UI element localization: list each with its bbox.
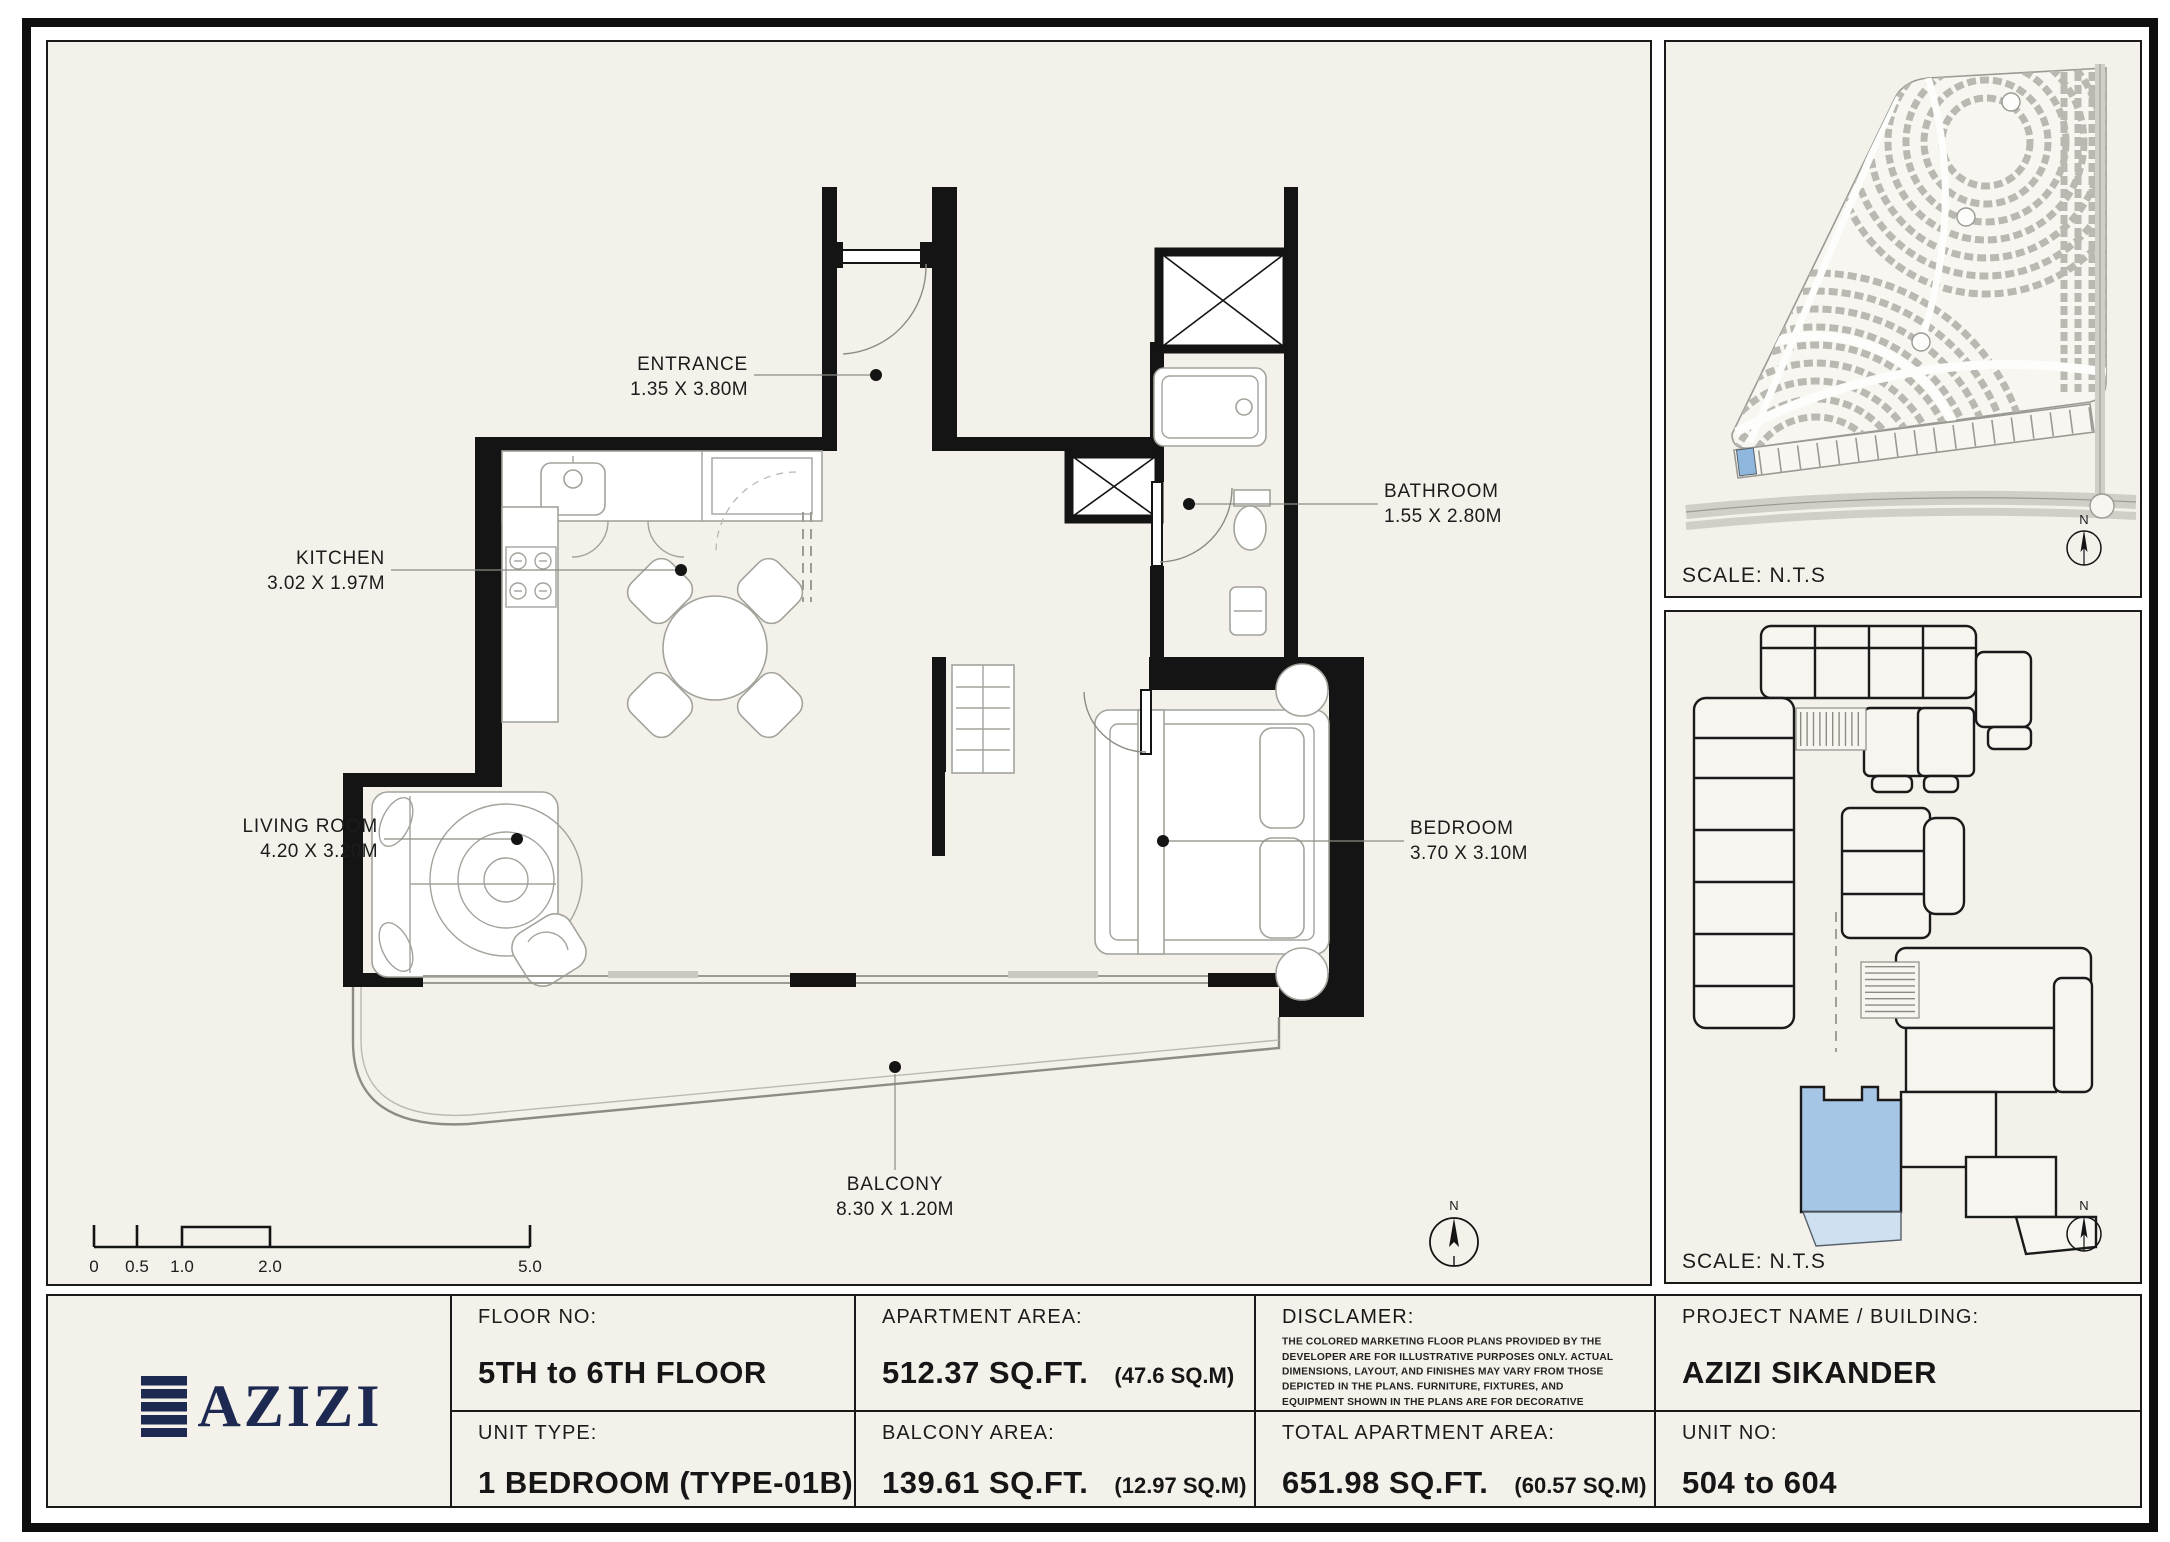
svg-text:4.20 X 3.20M: 4.20 X 3.20M bbox=[260, 841, 378, 862]
svg-text:KITCHEN: KITCHEN bbox=[296, 548, 385, 569]
floor-plan-panel: ENTRANCE 1.35 X 3.80M KITCHEN 3.02 X 1.9… bbox=[46, 40, 1652, 1286]
floor-no-label: FLOOR NO: bbox=[478, 1306, 854, 1329]
svg-text:0.5: 0.5 bbox=[125, 1257, 149, 1276]
site-north-arrow-icon: N bbox=[2067, 512, 2101, 565]
svg-text:LIVING ROOM: LIVING ROOM bbox=[243, 816, 378, 837]
svg-text:0: 0 bbox=[89, 1257, 98, 1276]
bedroom-furniture bbox=[1079, 660, 1329, 1000]
project-name-value: AZIZI SIKANDER bbox=[1682, 1355, 2140, 1391]
unit-type-value: 1 BEDROOM (TYPE-01B) bbox=[478, 1465, 854, 1501]
living-room-furniture bbox=[372, 792, 593, 993]
key-plan-panel: N SCALE: N.T.S bbox=[1664, 610, 2142, 1284]
disclaimer-title: DISCLAMER: bbox=[1282, 1306, 1654, 1329]
site-map-drawing: N SCALE: N.T.S bbox=[1666, 42, 2140, 596]
apartment-area-sqm: (47.6 SQ.M) bbox=[1114, 1363, 1234, 1388]
floor-plan-drawing: ENTRANCE 1.35 X 3.80M KITCHEN 3.02 X 1.9… bbox=[48, 42, 1650, 1284]
svg-text:1.0: 1.0 bbox=[170, 1257, 194, 1276]
svg-text:1.35 X 3.80M: 1.35 X 3.80M bbox=[630, 379, 748, 400]
north-arrow-icon: N bbox=[1430, 1198, 1478, 1266]
room-label-balcony: BALCONY 8.30 X 1.20M bbox=[836, 1061, 954, 1220]
closet bbox=[952, 665, 1014, 773]
logo: AZIZI bbox=[48, 1296, 450, 1506]
total-area-value: 651.98 SQ.FT.(60.57 SQ.M) bbox=[1282, 1465, 1654, 1501]
svg-text:1.55 X 2.80M: 1.55 X 2.80M bbox=[1384, 506, 1502, 527]
key-plan-drawing: N SCALE: N.T.S bbox=[1666, 612, 2140, 1282]
unit-type-label: UNIT TYPE: bbox=[478, 1422, 854, 1445]
balcony-area-sqft: 139.61 SQ.FT. bbox=[882, 1465, 1088, 1500]
balcony-outline bbox=[353, 987, 1279, 1124]
room-label-bathroom: BATHROOM 1.55 X 2.80M bbox=[1183, 481, 1502, 527]
cell-total-area: TOTAL APARTMENT AREA: 651.98 SQ.FT.(60.5… bbox=[1254, 1410, 1654, 1506]
svg-text:3.70 X 3.10M: 3.70 X 3.10M bbox=[1410, 843, 1528, 864]
highlighted-plot bbox=[1736, 448, 1756, 476]
site-map-panel: N SCALE: N.T.S bbox=[1664, 40, 2142, 598]
title-block-table: AZIZI FLOOR NO: 5TH to 6TH FLOOR APARTME… bbox=[46, 1294, 2142, 1508]
total-area-sqft: 651.98 SQ.FT. bbox=[1282, 1465, 1488, 1500]
svg-text:3.02 X 1.97M: 3.02 X 1.97M bbox=[267, 573, 385, 594]
highlighted-unit-balcony bbox=[1803, 1212, 1901, 1246]
svg-text:BALCONY: BALCONY bbox=[847, 1174, 943, 1195]
unit-no-label: UNIT NO: bbox=[1682, 1422, 2140, 1445]
svg-text:N: N bbox=[1449, 1198, 1458, 1213]
project-name-label: PROJECT NAME / BUILDING: bbox=[1682, 1306, 2140, 1329]
total-area-label: TOTAL APARTMENT AREA: bbox=[1282, 1422, 1654, 1445]
svg-text:2.0: 2.0 bbox=[258, 1257, 282, 1276]
cell-disclaimer: DISCLAMER: THE COLORED MARKETING FLOOR P… bbox=[1254, 1296, 1654, 1410]
site-scale-label: SCALE: N.T.S bbox=[1682, 564, 1826, 587]
cell-project-name: PROJECT NAME / BUILDING: AZIZI SIKANDER bbox=[1654, 1296, 2140, 1410]
cell-unit-no: UNIT NO: 504 to 604 bbox=[1654, 1410, 2140, 1506]
svg-text:5.0: 5.0 bbox=[518, 1257, 542, 1276]
cell-apartment-area: APARTMENT AREA: 512.37 SQ.FT.(47.6 SQ.M) bbox=[854, 1296, 1254, 1410]
apartment-area-sqft: 512.37 SQ.FT. bbox=[882, 1355, 1088, 1390]
entrance-door bbox=[831, 242, 932, 354]
apartment-area-value: 512.37 SQ.FT.(47.6 SQ.M) bbox=[882, 1355, 1254, 1391]
cell-balcony-area: BALCONY AREA: 139.61 SQ.FT.(12.97 SQ.M) bbox=[854, 1410, 1254, 1506]
azizi-logo-bars-icon bbox=[141, 1376, 187, 1437]
azizi-logo-text: AZIZI bbox=[197, 1372, 382, 1441]
scale-bar-labels: 0 0.5 1.0 2.0 5.0 bbox=[89, 1257, 542, 1276]
cell-unit-type: UNIT TYPE: 1 BEDROOM (TYPE-01B) bbox=[450, 1410, 854, 1506]
svg-text:BEDROOM: BEDROOM bbox=[1410, 818, 1514, 839]
balcony-area-label: BALCONY AREA: bbox=[882, 1422, 1254, 1445]
scale-bar bbox=[94, 1225, 530, 1247]
key-scale-label: SCALE: N.T.S bbox=[1682, 1250, 1826, 1273]
dining-set bbox=[622, 553, 808, 743]
room-label-entrance: ENTRANCE 1.35 X 3.80M bbox=[630, 354, 882, 400]
disclaimer-body: THE COLORED MARKETING FLOOR PLANS PROVID… bbox=[1282, 1335, 1620, 1410]
balcony-area-value: 139.61 SQ.FT.(12.97 SQ.M) bbox=[882, 1465, 1254, 1501]
svg-text:N: N bbox=[2079, 1198, 2088, 1213]
apartment-area-label: APARTMENT AREA: bbox=[882, 1306, 1254, 1329]
svg-text:BATHROOM: BATHROOM bbox=[1384, 481, 1499, 502]
balcony-area-sqm: (12.97 SQ.M) bbox=[1114, 1473, 1246, 1498]
svg-text:ENTRANCE: ENTRANCE bbox=[637, 354, 748, 375]
total-area-sqm: (60.57 SQ.M) bbox=[1514, 1473, 1646, 1498]
unit-no-value: 504 to 604 bbox=[1682, 1465, 2140, 1501]
svg-text:N: N bbox=[2079, 512, 2088, 527]
highlighted-unit bbox=[1801, 1087, 1901, 1246]
svg-text:8.30 X 1.20M: 8.30 X 1.20M bbox=[836, 1199, 954, 1220]
bathroom-fixtures bbox=[1152, 368, 1270, 635]
cell-floor-no: FLOOR NO: 5TH to 6TH FLOOR bbox=[450, 1296, 854, 1410]
floor-no-value: 5TH to 6TH FLOOR bbox=[478, 1355, 854, 1391]
